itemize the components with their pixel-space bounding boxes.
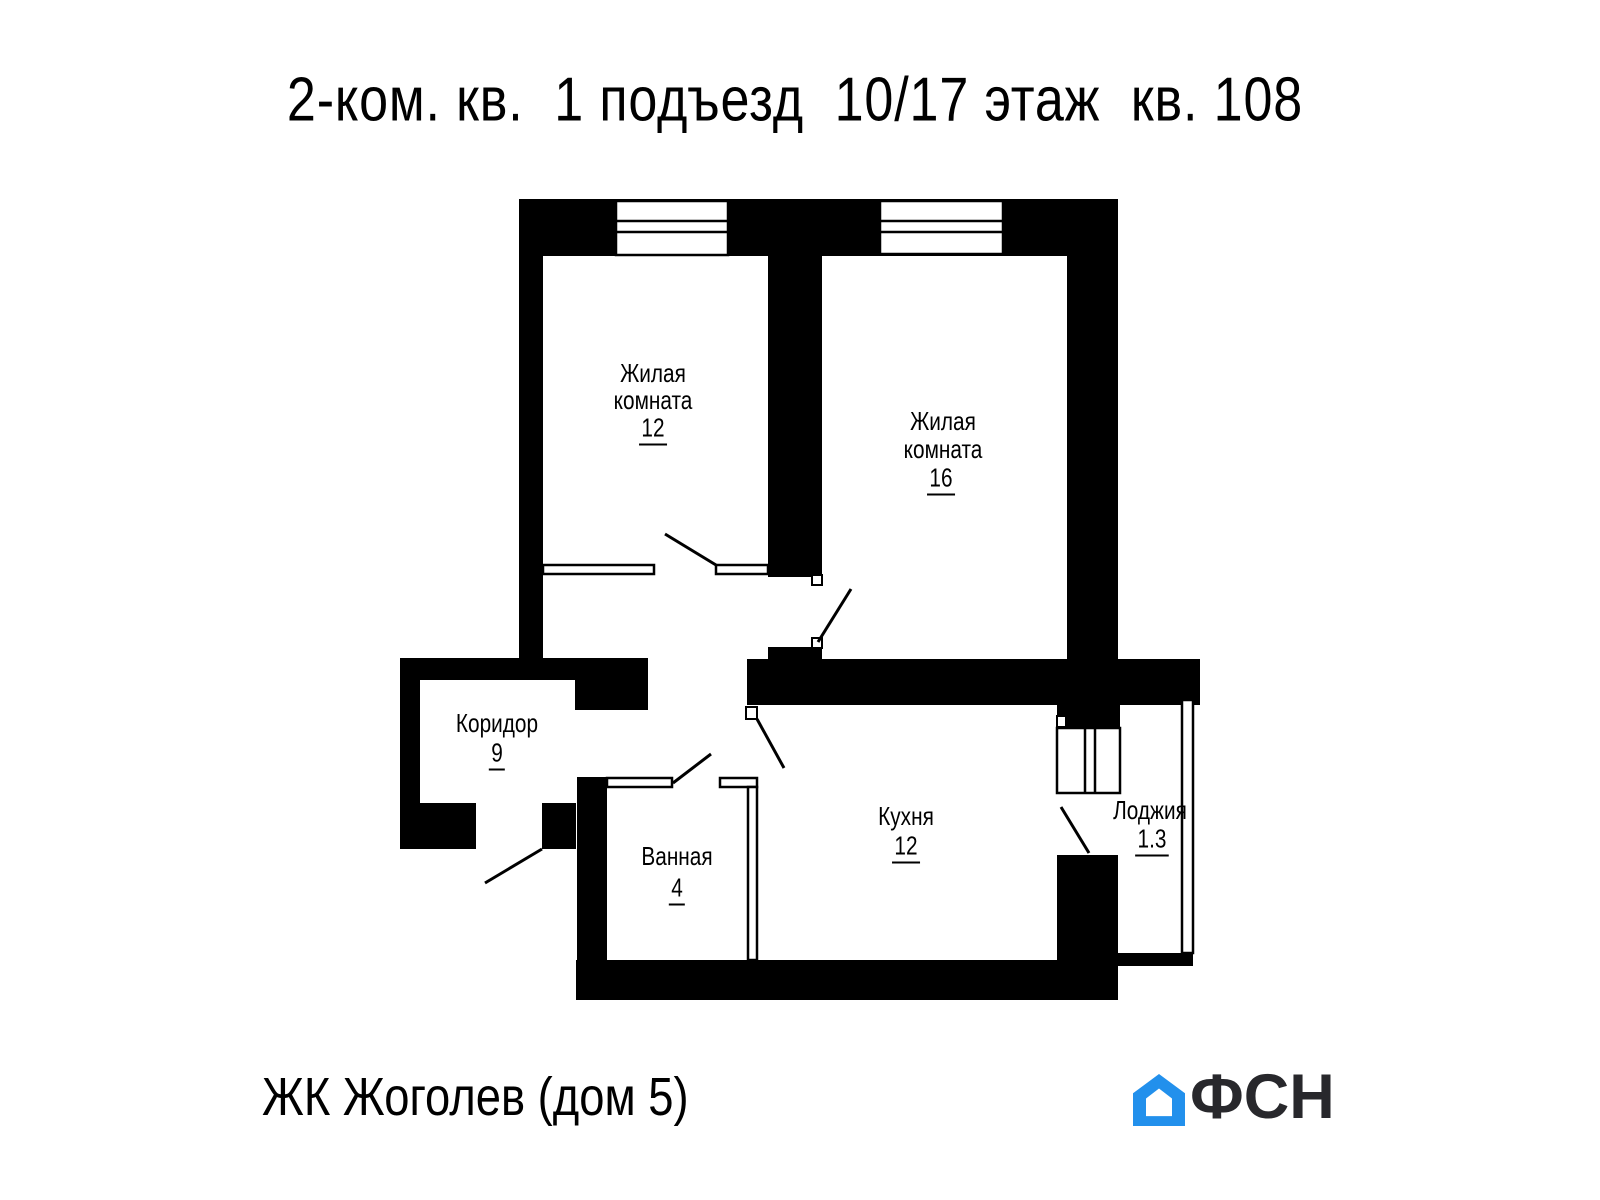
door-balcony-leaf [1061,807,1089,853]
wall-right [1067,256,1118,660]
wall-between-rooms [768,256,822,577]
bathroom-area: 4 [669,875,685,906]
project-name: ЖК Жоголев (дом 5) [262,1066,689,1128]
wall-balcony-lower [1057,855,1118,960]
kitchen-area: 12 [892,833,920,864]
room1-label-line2: комната [614,387,693,413]
balcony-window-icon [1057,728,1120,793]
door-kitchen-leaf [757,719,784,768]
door-room2-leaf [818,589,851,642]
window-room2-icon [880,201,1003,254]
room2-area: 16 [927,465,955,496]
room1-area: 12 [639,415,667,446]
door-entrance-leaf [485,849,542,883]
floorplan-page: 2-ком. кв. 1 подъезд 10/17 этаж кв. 108 [0,0,1600,1200]
wall-corridor-top-thin [400,658,575,680]
bathroom-label: Ванная [641,843,712,869]
door-bathroom-leaf [673,754,711,783]
door-room1-leaf [665,534,716,565]
partition-bathroom-corner [720,778,757,787]
walls-layer [400,199,1200,1000]
developer-logo: ФСН [1133,1074,1343,1126]
room1-label-line1: Жилая [620,360,686,386]
wall-top [519,199,1118,256]
wall-corridor-top-block [575,658,648,710]
partition-room1-right [716,565,768,574]
loggia-label: Лоджия [1113,797,1187,823]
partition-bathroom-right [748,787,757,960]
jamb-kitchen [746,707,757,719]
room2-label-line2: комната [904,436,983,462]
jamb-balcony [1057,716,1066,727]
house-icon [1133,1074,1185,1126]
wall-left [519,256,543,680]
window-room1-icon [616,201,728,255]
floorplan-canvas [0,0,1600,1200]
logo-text: ФСН [1190,1061,1335,1133]
loggia-glazing [1182,700,1193,953]
loggia-area: 1.3 [1135,826,1169,857]
room2-label-line1: Жилая [910,408,976,434]
wall-corridor-bottom-left [400,803,476,849]
wall-loggia-bottom [1118,953,1193,966]
wall-kitchen-top [747,659,1200,705]
jamb-room2-top [812,575,822,585]
corridor-area: 9 [489,740,505,771]
wall-bottom [576,960,1118,1000]
corridor-label: Коридор [456,710,538,736]
wall-corridor-bottom-right [542,803,576,849]
kitchen-label: Кухня [878,803,934,829]
partition-room1-left [543,565,654,574]
partition-bathroom-top [607,778,672,787]
